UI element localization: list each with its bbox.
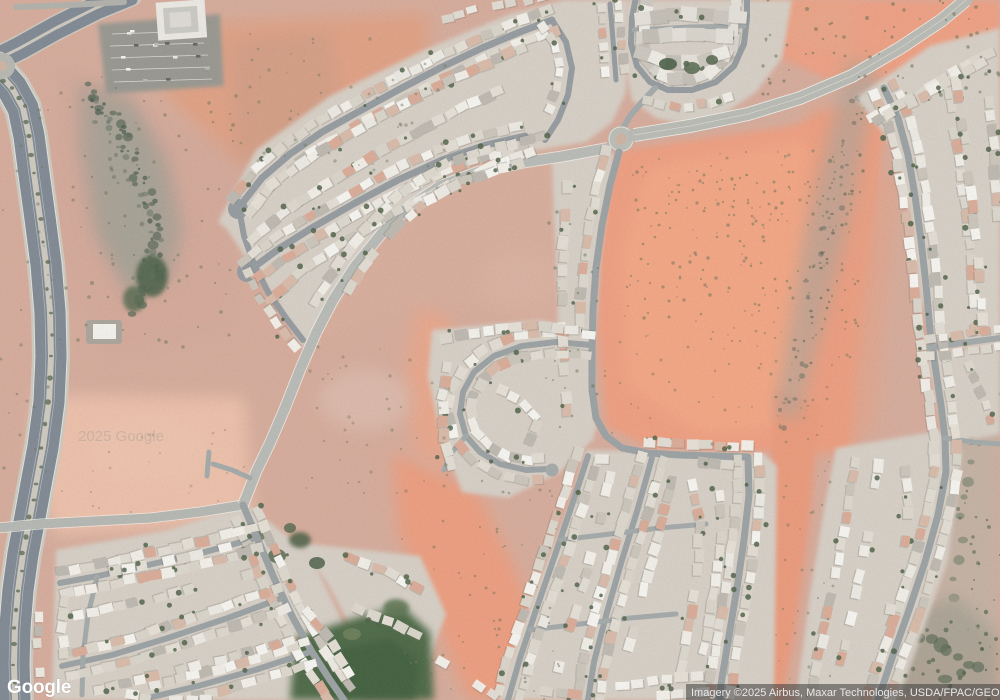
svg-text:2025 Google: 2025 Google: [78, 428, 164, 445]
svg-text:Imagery ©2025 Airbus, Maxar Te: Imagery ©2025 Airbus, Maxar Technologies…: [691, 687, 1000, 699]
svg-text:Google: Google: [7, 677, 71, 698]
